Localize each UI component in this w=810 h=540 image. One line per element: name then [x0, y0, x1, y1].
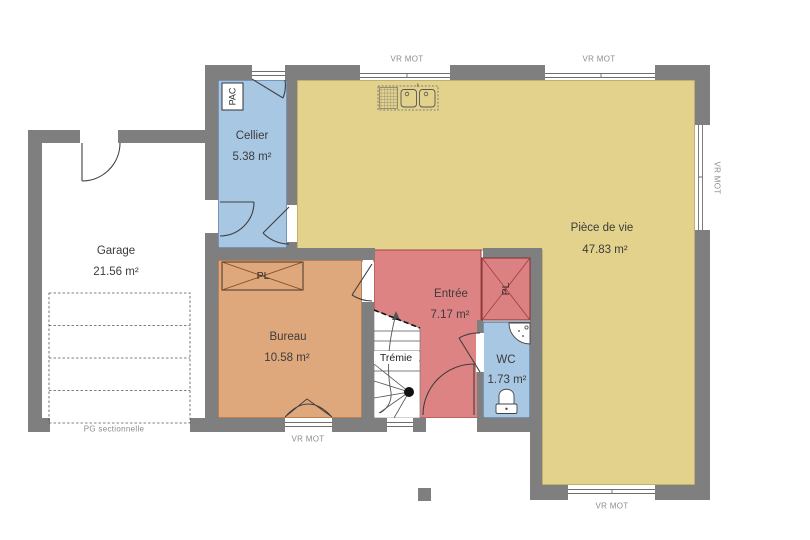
vr-mot-label-top-right: VR MOT	[583, 55, 616, 64]
garage-name-label: Garage	[97, 245, 135, 257]
garage-room[interactable]	[42, 143, 205, 418]
wall-garage-bottom-stub	[28, 418, 50, 432]
garage-door-label: PG sectionnelle	[84, 425, 145, 434]
door-bureau-opening[interactable]	[362, 262, 374, 302]
bureau-area-label: 10.58 m²	[264, 352, 310, 364]
toilet-button	[505, 408, 507, 410]
floor-plan-canvas: Garage 21.56 m² Cellier 5.38 m² Pièce de…	[0, 0, 810, 540]
wall-garage-top	[28, 130, 218, 143]
toilet-bowl-icon[interactable]	[499, 389, 514, 404]
window-stair-opening[interactable]	[387, 418, 413, 432]
door-cellier-exterior-opening[interactable]	[252, 65, 285, 80]
sink-drainboard	[380, 88, 398, 109]
bureau-name-label: Bureau	[269, 331, 306, 343]
washbasin-dot2	[522, 335, 524, 337]
floor-plan-drawing: Garage 21.56 m² Cellier 5.38 m² Pièce de…	[0, 0, 810, 540]
wall-wc-right	[530, 248, 542, 485]
wall-wc-left-upper	[477, 320, 483, 333]
door-entrance-opening[interactable]	[426, 418, 477, 432]
wall-bureau-top	[205, 248, 375, 260]
tremie-label: Trémie	[380, 352, 412, 364]
piece-de-vie-name-label: Pièce de vie	[571, 222, 634, 234]
wc-area-label: 1.73 m²	[488, 374, 527, 386]
porch-post	[418, 488, 431, 501]
vr-mot-label-bottom-right: VR MOT	[596, 502, 629, 511]
entree-area-label: 7.17 m²	[431, 309, 470, 321]
washbasin-dot	[518, 330, 520, 332]
wall-garage-left	[28, 130, 42, 432]
cellier-name-label: Cellier	[236, 130, 269, 142]
entree-name-label: Entrée	[434, 288, 468, 300]
wall-bureau-right	[362, 300, 374, 418]
door-garage-cellier-opening[interactable]	[205, 200, 218, 233]
piece-de-vie-area-label: 47.83 m²	[582, 244, 628, 256]
wall-wc-left-lower	[477, 372, 483, 418]
wc-name-label: WC	[496, 354, 515, 366]
door-cellier-living-opening[interactable]	[287, 205, 297, 242]
vr-mot-label-top-left: VR MOT	[391, 55, 424, 64]
heat-pump-label: PAC	[228, 87, 238, 105]
door-wc-opening[interactable]	[476, 333, 484, 372]
closet-entree-label: PL	[500, 282, 512, 295]
door-garage-top-opening[interactable]	[80, 130, 118, 143]
window-bottom-right-opening[interactable]	[568, 485, 655, 500]
closet-bureau-label: PL	[257, 270, 270, 282]
window-bureau-opening[interactable]	[285, 418, 332, 432]
vr-mot-label-right: VR MOT	[713, 162, 722, 195]
vr-mot-label-bottom-left: VR MOT	[292, 435, 325, 444]
stair-newel-post	[404, 387, 414, 397]
cellier-area-label: 5.38 m²	[233, 151, 272, 163]
garage-area-label: 21.56 m²	[93, 266, 139, 278]
wall-bottom-left	[190, 418, 540, 432]
